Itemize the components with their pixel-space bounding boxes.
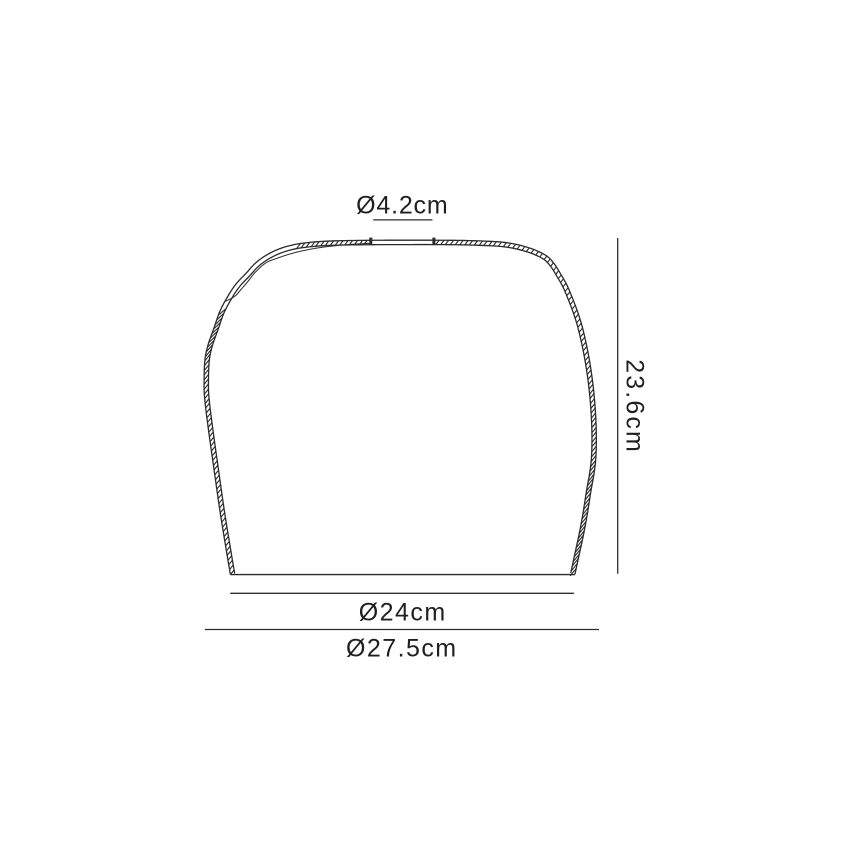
svg-text:Ø4.2cm: Ø4.2cm [356, 191, 448, 219]
svg-text:Ø24cm: Ø24cm [359, 599, 447, 627]
svg-text:23.6cm: 23.6cm [621, 359, 649, 454]
svg-text:Ø27.5cm: Ø27.5cm [346, 635, 458, 663]
